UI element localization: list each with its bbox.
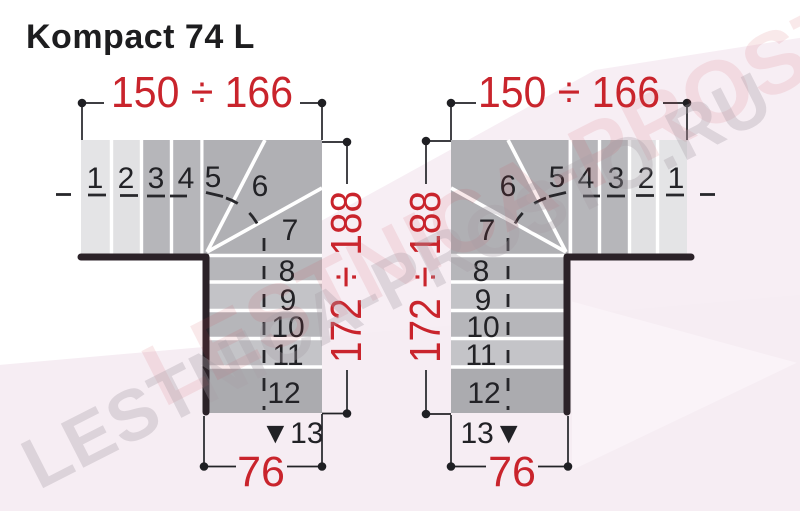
height-dimension-label: 172 ÷ 188 bbox=[322, 191, 371, 363]
height-dimension: 172 ÷ 188 bbox=[401, 137, 451, 419]
tread bbox=[600, 140, 630, 257]
step-number: 4 bbox=[178, 162, 195, 195]
step-number: 1 bbox=[87, 162, 104, 195]
step-13-arrow-label: ▼13 bbox=[260, 417, 323, 450]
wall-line bbox=[567, 257, 691, 412]
height-dimension: 172 ÷ 188 bbox=[322, 138, 371, 418]
exit-width-label: 76 bbox=[237, 448, 285, 496]
step-number: 6 bbox=[500, 170, 517, 203]
step-number: 3 bbox=[148, 162, 165, 195]
tread bbox=[142, 140, 172, 257]
step-number: 7 bbox=[479, 214, 496, 247]
tread bbox=[658, 140, 688, 257]
width-dimension: 150 ÷ 166 bbox=[78, 68, 327, 140]
step-number: 5 bbox=[205, 161, 222, 194]
step-number: 4 bbox=[578, 162, 595, 195]
tread bbox=[81, 140, 112, 257]
step-number: 5 bbox=[549, 161, 566, 194]
left-staircase-plan: 1 2 3 4 5 6 7 8 9 10 11 12 ▼13 150 ÷ 166 bbox=[56, 68, 371, 496]
step-number: 12 bbox=[267, 377, 300, 410]
staircase-diagram: 1 2 3 4 5 6 7 8 9 10 11 12 ▼13 150 ÷ 166 bbox=[0, 0, 800, 511]
height-dimension-label: 172 ÷ 188 bbox=[401, 191, 450, 363]
right-staircase-plan: 1 2 3 4 5 6 7 8 9 10 11 12 13▼ 150 ÷ 166 bbox=[401, 68, 715, 496]
tread bbox=[112, 140, 142, 257]
step-number: 1 bbox=[668, 162, 685, 195]
tread bbox=[209, 311, 322, 339]
step-number: 11 bbox=[272, 339, 303, 372]
step-number: 2 bbox=[638, 162, 655, 195]
step-number: 12 bbox=[467, 377, 500, 410]
step-13-arrow-label: 13▼ bbox=[460, 417, 523, 450]
tread bbox=[209, 367, 322, 413]
wall-line bbox=[81, 257, 206, 412]
tread bbox=[172, 140, 202, 257]
width-dimension-label: 150 ÷ 166 bbox=[478, 68, 660, 117]
width-dimension-label: 150 ÷ 166 bbox=[111, 68, 293, 117]
width-dimension: 150 ÷ 166 bbox=[447, 68, 692, 140]
tread bbox=[209, 282, 322, 311]
tread bbox=[571, 140, 600, 257]
tread bbox=[209, 256, 322, 282]
step-number: 7 bbox=[282, 214, 299, 247]
step-number: 11 bbox=[465, 339, 496, 372]
exit-width-label: 76 bbox=[488, 448, 536, 496]
step-number: 3 bbox=[608, 162, 625, 195]
tread bbox=[630, 140, 658, 257]
tread bbox=[209, 339, 322, 368]
step-number: 6 bbox=[252, 170, 269, 203]
step-number: 2 bbox=[118, 162, 135, 195]
